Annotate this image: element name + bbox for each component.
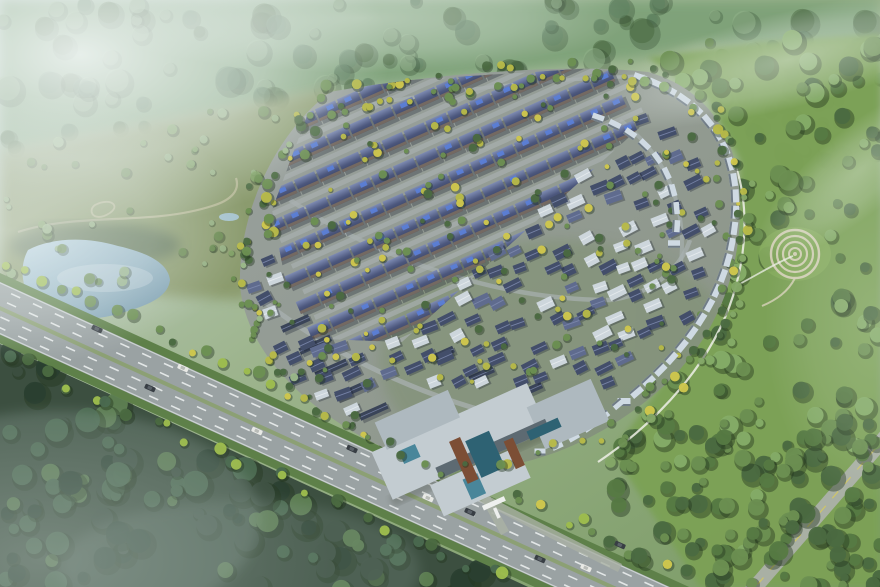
park-tree <box>660 481 673 494</box>
park-tree <box>737 432 751 446</box>
far-tree <box>709 10 720 21</box>
garden-tree <box>683 161 689 167</box>
garden-tree <box>421 301 429 309</box>
garden-tree <box>458 216 466 224</box>
roadside-tree <box>334 501 341 508</box>
garden-tree <box>440 152 445 157</box>
park-tree <box>840 573 848 581</box>
garden-tree <box>493 246 500 253</box>
garden-tree <box>516 136 522 142</box>
park-tree <box>685 542 699 556</box>
belt-tree <box>300 394 308 402</box>
garden-tree <box>501 343 507 349</box>
belt-tree <box>664 410 672 418</box>
garden-tree <box>477 359 482 364</box>
roadside-tree <box>462 565 469 572</box>
garden-tree <box>654 259 659 264</box>
belt-tree <box>448 78 454 84</box>
park-tree <box>862 557 874 569</box>
belt-tree <box>679 383 689 393</box>
garden-tree <box>444 221 450 227</box>
arc-row-house <box>731 189 740 202</box>
garden-tree <box>554 213 562 221</box>
garden-tree <box>503 233 510 240</box>
roadside-tree <box>579 513 590 524</box>
park-tree <box>736 362 750 376</box>
scene-canvas: Aerial rendering of a residential master… <box>0 0 880 587</box>
belt-tree <box>238 279 246 287</box>
belt-tree <box>386 84 391 89</box>
park-tree <box>759 518 768 527</box>
garden-tree <box>512 177 520 185</box>
belt-tree <box>431 89 436 94</box>
belt-tree <box>286 382 294 390</box>
garden-tree <box>664 150 669 155</box>
garden-tree <box>484 220 489 225</box>
park-tree <box>754 397 762 405</box>
garden-tree <box>324 344 332 352</box>
garden-tree <box>473 134 481 142</box>
belt-tree <box>731 158 738 165</box>
belt-tree <box>535 450 540 455</box>
garden-tree <box>653 199 659 205</box>
far-tree <box>584 48 606 70</box>
garden-tree <box>379 317 386 324</box>
garden-tree <box>470 380 474 384</box>
garden-tree <box>389 357 395 363</box>
belt-tree <box>405 78 410 83</box>
park-tree <box>660 533 669 542</box>
garden-tree <box>273 300 277 304</box>
roadside-tree <box>253 366 265 378</box>
roadside-tree <box>379 525 389 535</box>
belt-tree <box>635 406 641 412</box>
garden-tree <box>403 247 411 255</box>
garden-tree <box>560 169 568 177</box>
garden-tree <box>367 238 373 244</box>
roadside-tree <box>588 528 595 535</box>
belt-tree <box>438 472 444 478</box>
park-tree <box>748 499 765 516</box>
park-tree <box>626 461 637 472</box>
belt-tree <box>526 74 534 82</box>
belt-tree <box>264 214 274 224</box>
garden-tree <box>316 271 321 276</box>
garden-tree <box>561 273 567 279</box>
garden-tree <box>564 224 569 229</box>
arc-roof-shadow <box>668 246 680 248</box>
belt-tree <box>743 225 753 235</box>
arc-row-house <box>671 202 680 215</box>
garden-tree <box>417 323 422 328</box>
garden-tree <box>537 245 545 253</box>
belt-tree <box>686 356 693 363</box>
garden-tree <box>501 268 508 275</box>
park-tree <box>643 495 653 505</box>
garden-tree <box>659 321 663 325</box>
garden-tree <box>597 340 602 345</box>
garden-tree <box>315 374 324 383</box>
park-tree <box>727 338 735 346</box>
park-tree <box>705 355 715 365</box>
garden-tree <box>559 295 565 301</box>
belt-tree <box>396 451 405 460</box>
garden-tree <box>662 263 670 271</box>
belt-tree <box>436 73 442 79</box>
roadside-tree <box>425 538 437 550</box>
garden-tree <box>447 233 453 239</box>
park-tree <box>747 527 760 540</box>
belt-tree <box>421 460 428 467</box>
belt-tree <box>452 84 460 92</box>
garden-tree <box>584 204 592 212</box>
belt-tree <box>717 146 726 155</box>
park-tree <box>731 549 748 566</box>
garden-tree <box>624 352 629 357</box>
park-tree <box>716 430 731 445</box>
roadside-tree <box>218 358 228 368</box>
garden-tree <box>657 254 662 259</box>
park-tree <box>763 459 774 470</box>
belt-tree <box>698 358 705 365</box>
garden-tree <box>713 175 720 182</box>
garden-tree <box>352 353 360 361</box>
belt-tree <box>320 412 328 420</box>
belt-tree <box>718 306 726 314</box>
forest-tree <box>419 572 434 587</box>
garden-tree <box>654 181 662 189</box>
roadside-tree <box>266 380 275 389</box>
belt-tree <box>645 382 654 391</box>
garden-tree <box>649 283 655 289</box>
park-tree <box>785 520 799 534</box>
belt-tree <box>647 414 656 423</box>
belt-tree <box>559 75 564 80</box>
belt-tree <box>739 255 746 262</box>
park-tree <box>674 430 685 441</box>
arc-row-house <box>729 221 739 235</box>
belt-tree <box>365 435 370 440</box>
belt-tree <box>728 138 735 145</box>
garden-tree <box>698 215 704 221</box>
garden-tree <box>670 265 676 271</box>
park-tree <box>849 554 861 566</box>
garden-tree <box>375 232 383 240</box>
roadside-tree <box>301 490 308 497</box>
garden-tree <box>496 279 501 284</box>
forest-tree <box>12 366 23 377</box>
belt-tree <box>269 351 276 358</box>
garden-tree <box>350 211 358 219</box>
garden-tree <box>476 265 484 273</box>
belt-tree <box>239 301 245 307</box>
garden-tree <box>605 164 610 169</box>
belt-tree <box>607 419 615 427</box>
garden-tree <box>483 363 490 370</box>
garden-tree <box>456 199 464 207</box>
belt-tree <box>290 373 298 381</box>
park-tree <box>674 455 687 468</box>
roadside-tree <box>62 385 70 393</box>
belt-tree <box>507 64 514 71</box>
garden-tree <box>583 310 591 318</box>
garden-tree <box>512 94 517 99</box>
garden-tree <box>555 307 560 312</box>
roadside-tree <box>201 345 212 356</box>
park-tree <box>780 572 788 580</box>
garden-tree <box>541 102 546 107</box>
belt-tree <box>741 194 747 200</box>
forest-tree <box>24 382 46 404</box>
park-tree <box>765 191 774 200</box>
garden-tree <box>715 200 723 208</box>
garden-tree <box>329 304 334 309</box>
belt-tree <box>244 300 252 308</box>
garden-tree <box>510 363 516 369</box>
park-tree <box>611 497 626 512</box>
garden-tree <box>351 411 359 419</box>
belt-tree <box>689 346 698 355</box>
garden-tree <box>452 277 458 283</box>
garden-tree <box>611 344 618 351</box>
garden-tree <box>545 220 553 228</box>
belt-tree <box>749 180 756 187</box>
garden-tree <box>365 268 370 273</box>
garden-tree <box>382 244 389 251</box>
garden-tree <box>659 345 664 350</box>
garden-tree <box>687 132 696 141</box>
garden-tree <box>563 312 572 321</box>
garden-tree <box>324 291 330 297</box>
park-tree <box>760 473 775 488</box>
garden-tree <box>267 310 273 316</box>
garden-tree <box>444 125 451 132</box>
park-tree <box>814 127 828 141</box>
park-tree <box>677 528 688 539</box>
park-tree <box>675 497 688 510</box>
garden-tree <box>642 191 647 196</box>
roadside-tree <box>413 536 424 547</box>
garden-tree <box>289 320 294 325</box>
park-tree <box>826 529 845 548</box>
garden-tree <box>497 158 505 166</box>
garden-tree <box>332 353 339 360</box>
garden-tree <box>414 328 419 333</box>
park-tree <box>776 464 790 478</box>
garden-tree <box>384 237 390 243</box>
belt-tree <box>582 75 588 81</box>
park-tree <box>786 120 801 135</box>
belt-tree <box>736 300 744 308</box>
arc-row-house <box>672 220 680 232</box>
park-tree <box>714 384 726 396</box>
garden-tree <box>437 374 444 381</box>
garden-tree <box>328 221 336 229</box>
garden-tree <box>298 368 305 375</box>
belt-tree <box>407 99 413 105</box>
belt-tree <box>729 266 738 275</box>
park-tree <box>740 409 754 423</box>
roadside-tree <box>244 368 251 375</box>
roadside-tree <box>515 497 522 504</box>
garden-tree <box>511 84 518 91</box>
garden-tree <box>461 338 469 346</box>
roadside-tree <box>603 536 615 548</box>
belt-tree <box>568 58 577 67</box>
garden-tree <box>311 217 319 225</box>
roadside-tree <box>42 365 54 377</box>
roadside-tree <box>681 564 693 576</box>
garden-tree <box>715 160 720 165</box>
belt-tree <box>519 83 524 88</box>
garden-tree <box>407 266 414 273</box>
roadside-tree <box>496 567 509 580</box>
garden-tree <box>404 149 408 153</box>
garden-tree <box>428 354 436 362</box>
garden-tree <box>475 325 483 333</box>
garden-tree <box>307 360 313 366</box>
belt-tree <box>720 319 730 329</box>
belt-tree <box>494 82 502 90</box>
garden-tree <box>563 334 570 341</box>
garden-tree <box>423 189 432 198</box>
garden-tree <box>577 145 582 150</box>
roadside-tree <box>566 522 573 529</box>
garden-tree <box>606 143 612 149</box>
garden-tree <box>303 242 310 249</box>
garden-tree <box>449 98 456 105</box>
garden-tree <box>623 240 630 247</box>
garden-tree <box>438 174 444 180</box>
park-tree <box>699 478 707 486</box>
garden-tree <box>425 182 431 188</box>
park-tree <box>725 529 735 539</box>
garden-tree <box>283 282 289 288</box>
belt-tree <box>553 74 561 82</box>
arc-row-house <box>668 240 680 248</box>
garden-tree <box>484 341 490 347</box>
park-tree <box>755 133 764 142</box>
park-tree <box>720 419 728 427</box>
garden-tree <box>535 189 541 195</box>
garden-tree <box>703 176 710 183</box>
belt-tree <box>605 457 616 468</box>
garden-tree <box>469 144 477 152</box>
belt-tree <box>257 316 263 322</box>
garden-tree <box>315 242 322 249</box>
garden-tree <box>712 220 717 225</box>
garden-tree <box>318 324 327 333</box>
belt-tree <box>386 97 392 103</box>
garden-tree <box>625 326 632 333</box>
belt-tree <box>540 74 546 80</box>
park-tree <box>834 507 851 524</box>
park-tree <box>713 560 729 576</box>
garden-tree <box>379 170 387 178</box>
garden-tree <box>552 341 560 349</box>
park-tree <box>769 541 789 561</box>
garden-tree <box>534 114 541 121</box>
belt-tree <box>670 372 680 382</box>
park-tree <box>691 456 706 471</box>
belt-tree <box>743 213 754 224</box>
garden-tree <box>266 272 271 277</box>
belt-tree <box>599 438 605 444</box>
garden-tree <box>354 257 360 263</box>
park-tree <box>661 461 670 470</box>
garden-tree <box>635 248 641 254</box>
garden-tree <box>606 181 613 188</box>
garden-tree <box>595 234 604 243</box>
belt-tree <box>591 75 597 81</box>
garden-tree <box>336 292 344 300</box>
garden-tree <box>367 141 372 146</box>
park-tree <box>756 419 764 427</box>
roadside-tree <box>99 396 110 407</box>
park-tree <box>712 544 723 555</box>
park-tree <box>689 495 708 514</box>
belt-tree <box>496 460 505 469</box>
garden-tree <box>666 221 672 227</box>
garden-tree <box>522 111 528 117</box>
belt-tree <box>386 437 394 445</box>
belt-tree <box>280 369 287 376</box>
belt-tree <box>628 59 633 64</box>
belt-tree <box>466 88 473 95</box>
garden-tree <box>420 219 425 224</box>
belt-tree <box>462 461 467 466</box>
garden-tree <box>396 249 402 255</box>
belt-tree <box>264 230 272 238</box>
garden-tree <box>318 352 326 360</box>
belt-tree <box>608 65 616 73</box>
garden-tree <box>519 297 525 303</box>
garden-tree <box>530 367 537 374</box>
belt-tree <box>579 438 585 444</box>
garden-tree <box>369 344 375 350</box>
belt-tree <box>703 330 711 338</box>
park-tree <box>808 527 826 545</box>
garden-tree <box>473 258 478 263</box>
park-tree <box>719 498 735 514</box>
roadside-tree <box>663 560 672 569</box>
roadside-tree <box>436 552 445 561</box>
belt-tree <box>734 210 742 218</box>
roadside-tree <box>189 349 196 356</box>
garden-tree <box>346 220 351 225</box>
garden-tree <box>461 109 467 115</box>
garden-tree <box>362 157 368 163</box>
roadside-tree <box>513 490 521 498</box>
roadside-tree <box>363 513 372 522</box>
garden-tree <box>323 368 328 373</box>
garden-tree <box>547 105 553 111</box>
park-tree <box>689 425 704 440</box>
garden-tree <box>598 246 603 251</box>
garden-tree <box>659 232 664 237</box>
park-tree <box>607 479 626 498</box>
garden-tree <box>364 332 368 336</box>
garden-tree <box>324 337 330 343</box>
garden-tree <box>431 122 439 130</box>
garden-tree <box>621 223 629 231</box>
belt-tree <box>736 236 743 243</box>
belt-tree <box>731 281 742 292</box>
garden-tree <box>363 379 372 388</box>
garden-tree <box>695 169 700 174</box>
park-tree <box>734 450 751 467</box>
belt-tree <box>717 332 723 338</box>
